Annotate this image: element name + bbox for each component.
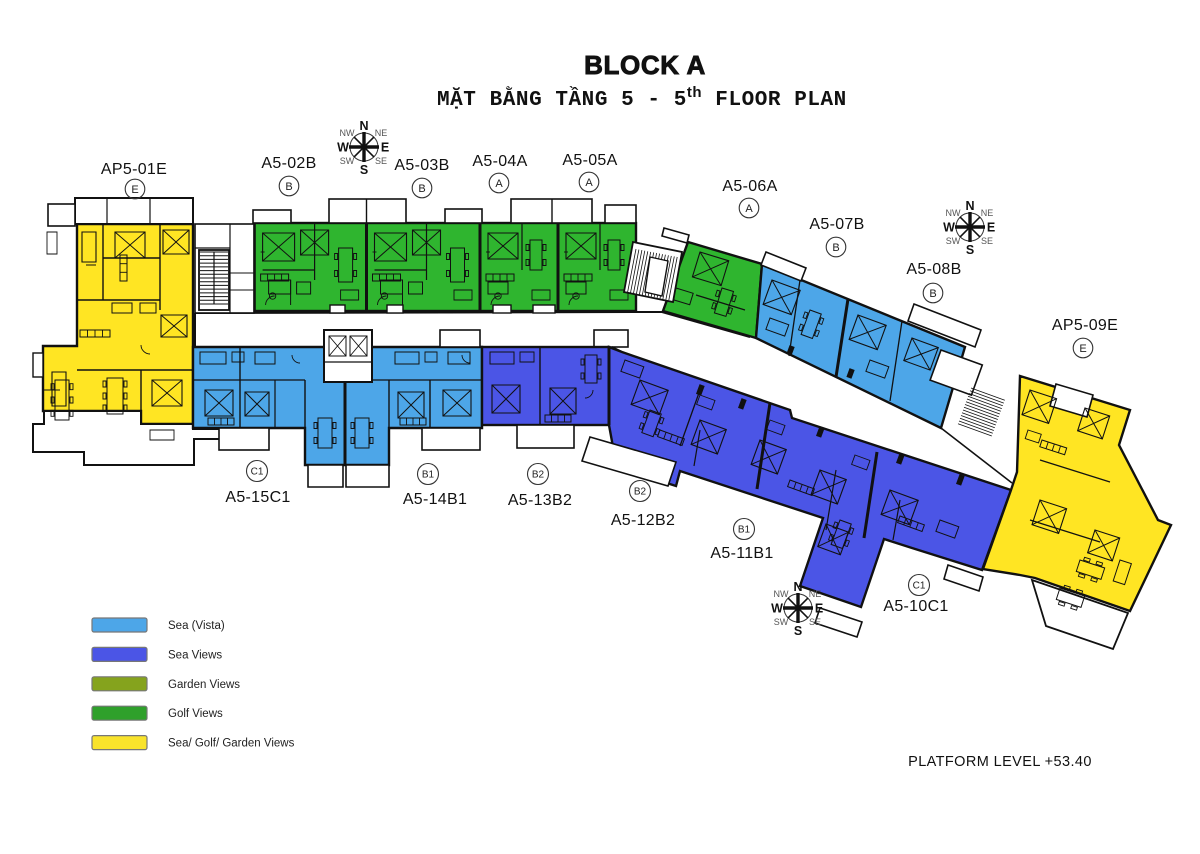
svg-text:NE: NE: [981, 208, 994, 218]
svg-text:W: W: [337, 141, 349, 155]
svg-text:C1: C1: [913, 581, 926, 592]
svg-text:BLOCK A: BLOCK A: [584, 50, 706, 80]
svg-text:A5-12B2: A5-12B2: [611, 512, 675, 529]
svg-text:A5-14B1: A5-14B1: [403, 491, 467, 508]
svg-text:S: S: [794, 624, 802, 638]
svg-text:A5-07B: A5-07B: [809, 216, 864, 233]
svg-text:A5-04A: A5-04A: [472, 153, 527, 170]
svg-text:W: W: [771, 602, 783, 616]
svg-text:NW: NW: [340, 128, 355, 138]
svg-text:A5-15C1: A5-15C1: [225, 489, 290, 506]
svg-text:E: E: [815, 602, 823, 616]
svg-text:E: E: [381, 141, 389, 155]
svg-text:E: E: [987, 221, 995, 235]
svg-text:N: N: [359, 119, 368, 133]
svg-text:A: A: [495, 178, 503, 190]
svg-text:Golf Views: Golf Views: [168, 708, 223, 720]
svg-text:S: S: [360, 163, 368, 177]
svg-text:SW: SW: [946, 236, 961, 246]
svg-text:SE: SE: [375, 156, 387, 166]
svg-text:B: B: [832, 242, 839, 254]
svg-text:SW: SW: [340, 156, 355, 166]
svg-text:B: B: [285, 181, 292, 193]
svg-text:A5-03B: A5-03B: [394, 157, 449, 174]
svg-text:B: B: [929, 288, 936, 300]
svg-text:A5-10C1: A5-10C1: [883, 598, 948, 615]
svg-text:NW: NW: [946, 208, 961, 218]
svg-text:B1: B1: [738, 525, 751, 536]
svg-text:A5-11B1: A5-11B1: [710, 545, 773, 562]
svg-text:A: A: [745, 203, 753, 215]
svg-text:A5-08B: A5-08B: [906, 261, 961, 278]
svg-text:SW: SW: [774, 617, 789, 627]
svg-text:A5-13B2: A5-13B2: [508, 492, 572, 509]
svg-text:A5-02B: A5-02B: [261, 155, 316, 172]
svg-text:B2: B2: [634, 487, 647, 498]
svg-text:N: N: [965, 199, 974, 213]
svg-text:SE: SE: [981, 236, 993, 246]
svg-text:Sea (Vista): Sea (Vista): [168, 620, 225, 632]
svg-text:A: A: [585, 177, 593, 189]
svg-text:B1: B1: [422, 470, 435, 481]
svg-text:B: B: [418, 183, 425, 195]
svg-text:A5-05A: A5-05A: [562, 152, 617, 169]
svg-text:NW: NW: [774, 589, 789, 599]
svg-text:B2: B2: [532, 470, 545, 481]
svg-text:SE: SE: [809, 617, 821, 627]
svg-text:N: N: [793, 580, 802, 594]
svg-text:Sea/ Golf/ Garden Views: Sea/ Golf/ Garden Views: [168, 738, 295, 750]
svg-text:PLATFORM LEVEL +53.40: PLATFORM LEVEL +53.40: [908, 754, 1092, 770]
svg-text:NE: NE: [375, 128, 388, 138]
svg-text:AP5-09E: AP5-09E: [1052, 317, 1118, 334]
svg-text:E: E: [1079, 343, 1086, 355]
svg-text:E: E: [131, 184, 138, 196]
svg-text:S: S: [966, 243, 974, 257]
svg-text:AP5-01E: AP5-01E: [101, 161, 167, 178]
svg-text:Garden Views: Garden Views: [168, 679, 240, 691]
svg-text:NE: NE: [809, 589, 822, 599]
svg-text:W: W: [943, 221, 955, 235]
svg-text:C1: C1: [251, 467, 264, 478]
svg-text:Sea Views: Sea Views: [168, 649, 222, 661]
svg-text:A5-06A: A5-06A: [722, 178, 777, 195]
